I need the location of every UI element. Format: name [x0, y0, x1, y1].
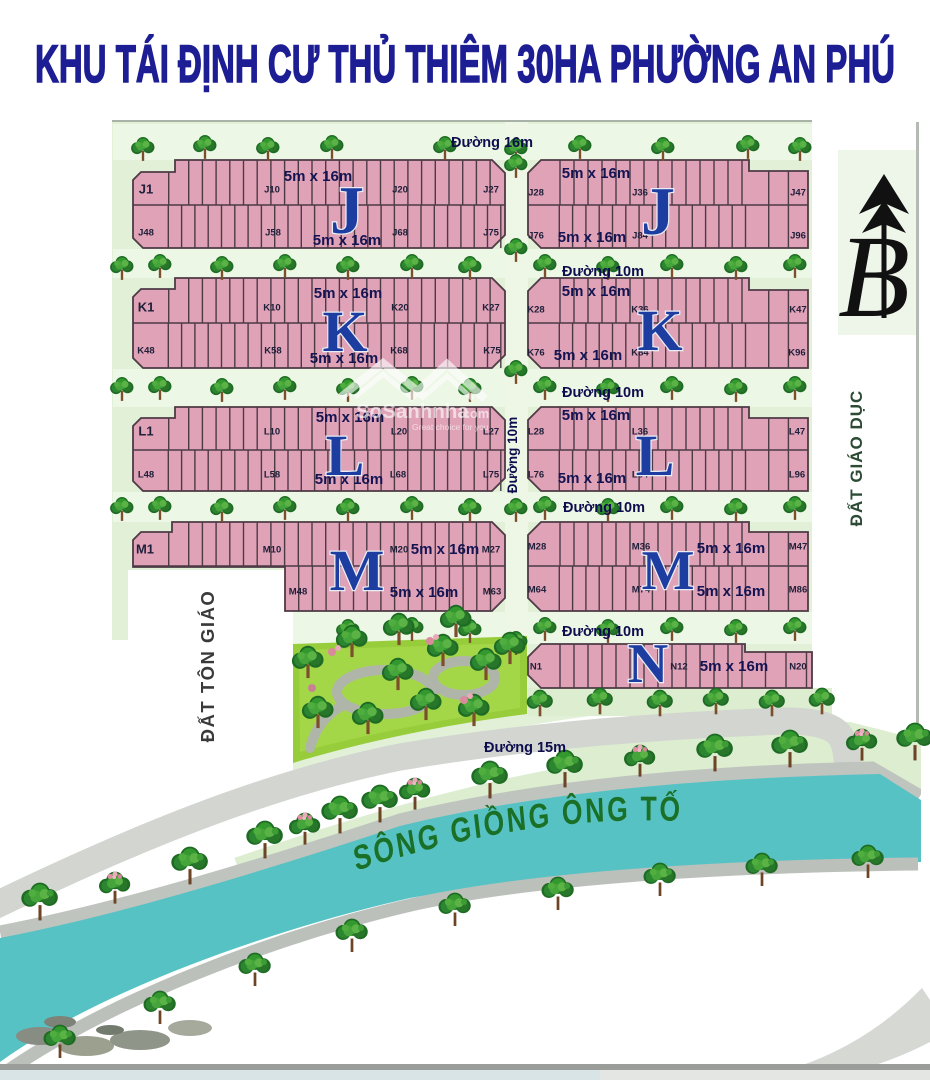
svg-text:L: L — [326, 423, 365, 488]
svg-text:J: J — [641, 173, 675, 249]
svg-text:5m x 16m: 5m x 16m — [700, 658, 768, 675]
svg-text:M1: M1 — [136, 542, 154, 557]
svg-text:N20: N20 — [789, 661, 806, 672]
svg-text:Đường 15m: Đường 15m — [484, 740, 566, 756]
svg-text:K27: K27 — [482, 302, 499, 313]
svg-text:K: K — [322, 299, 367, 364]
svg-text:M64: M64 — [528, 584, 547, 595]
svg-text:5m x 16m: 5m x 16m — [697, 540, 765, 557]
svg-text:K: K — [637, 298, 682, 363]
svg-text:M47: M47 — [789, 541, 807, 552]
svg-text:K28: K28 — [527, 304, 544, 315]
svg-text:J27: J27 — [483, 184, 499, 195]
svg-text:J68: J68 — [392, 227, 408, 238]
svg-text:L: L — [636, 423, 675, 488]
svg-text:M48: M48 — [289, 586, 307, 597]
svg-text:5m x 16m: 5m x 16m — [562, 165, 630, 182]
svg-text:L58: L58 — [264, 469, 280, 480]
svg-text:J47: J47 — [790, 187, 806, 198]
svg-text:J28: J28 — [528, 187, 544, 198]
svg-text:J76: J76 — [528, 230, 544, 241]
svg-text:K20: K20 — [391, 302, 408, 313]
svg-text:L76: L76 — [528, 469, 544, 480]
svg-text:J96: J96 — [790, 230, 806, 241]
svg-text:K47: K47 — [789, 304, 806, 315]
svg-text:M27: M27 — [482, 544, 500, 555]
svg-text:J20: J20 — [392, 184, 408, 195]
svg-text:K75: K75 — [483, 345, 501, 356]
svg-text:5m x 16m: 5m x 16m — [558, 229, 626, 246]
svg-text:J10: J10 — [264, 184, 280, 195]
svg-text:5m x 16m: 5m x 16m — [697, 583, 765, 600]
svg-text:M20: M20 — [390, 544, 408, 555]
svg-text:M28: M28 — [528, 541, 546, 552]
svg-text:Đường 10m: Đường 10m — [563, 500, 645, 516]
svg-text:KHU TÁI ĐỊNH CƯ THỦ THIÊM 30HA: KHU TÁI ĐỊNH CƯ THỦ THIÊM 30HA PHƯỜNG AN… — [35, 33, 895, 94]
svg-text:N: N — [628, 633, 668, 695]
svg-text:N1: N1 — [530, 661, 543, 672]
svg-text:J58: J58 — [265, 227, 281, 238]
svg-text:K76: K76 — [527, 347, 544, 358]
svg-text:L1: L1 — [138, 424, 153, 439]
svg-text:B: B — [838, 211, 910, 342]
svg-text:K58: K58 — [264, 345, 281, 356]
svg-text:5m x 16m: 5m x 16m — [562, 407, 630, 424]
svg-text:Đường 10m: Đường 10m — [505, 417, 520, 493]
svg-text:L20: L20 — [391, 426, 407, 437]
svg-text:K48: K48 — [137, 345, 154, 356]
svg-text:Đường 10m: Đường 10m — [562, 624, 644, 640]
svg-text:L75: L75 — [483, 469, 500, 480]
svg-text:J: J — [330, 172, 364, 248]
svg-text:5m x 16m: 5m x 16m — [558, 470, 626, 487]
svg-text:K96: K96 — [788, 347, 805, 358]
svg-text:5m x 16m: 5m x 16m — [411, 541, 479, 558]
svg-text:L48: L48 — [138, 469, 154, 480]
svg-text:Great choice for you: Great choice for you — [412, 422, 489, 432]
svg-text:5m x 16m: 5m x 16m — [554, 347, 622, 364]
svg-text:Đường 10m: Đường 10m — [562, 264, 644, 280]
svg-text:.com: .com — [459, 406, 489, 421]
svg-text:L96: L96 — [789, 469, 805, 480]
svg-text:K10: K10 — [263, 302, 280, 313]
svg-text:SoSanhnha: SoSanhnha — [356, 400, 469, 423]
svg-text:M: M — [642, 540, 695, 602]
svg-text:5m x 16m: 5m x 16m — [562, 283, 630, 300]
svg-text:M86: M86 — [789, 584, 807, 595]
svg-text:5m x 16m: 5m x 16m — [390, 584, 458, 601]
svg-text:L68: L68 — [390, 469, 406, 480]
svg-text:L28: L28 — [528, 426, 544, 437]
svg-text:ĐẤT TÔN GIÁO: ĐẤT TÔN GIÁO — [197, 590, 218, 743]
svg-text:J75: J75 — [483, 227, 500, 238]
svg-text:Đường 16m: Đường 16m — [451, 135, 533, 151]
svg-text:N12: N12 — [670, 661, 687, 672]
svg-text:ĐẤT GIÁO DỤC: ĐẤT GIÁO DỤC — [847, 390, 866, 527]
svg-text:L10: L10 — [264, 426, 280, 437]
svg-text:K1: K1 — [138, 300, 155, 315]
svg-text:K68: K68 — [390, 345, 407, 356]
svg-text:M63: M63 — [483, 586, 501, 597]
svg-text:Đường 10m: Đường 10m — [562, 385, 644, 401]
svg-text:M: M — [330, 538, 385, 603]
svg-text:J48: J48 — [138, 227, 154, 238]
svg-text:M10: M10 — [263, 544, 281, 555]
svg-text:L47: L47 — [789, 426, 805, 437]
svg-text:J1: J1 — [139, 182, 153, 197]
